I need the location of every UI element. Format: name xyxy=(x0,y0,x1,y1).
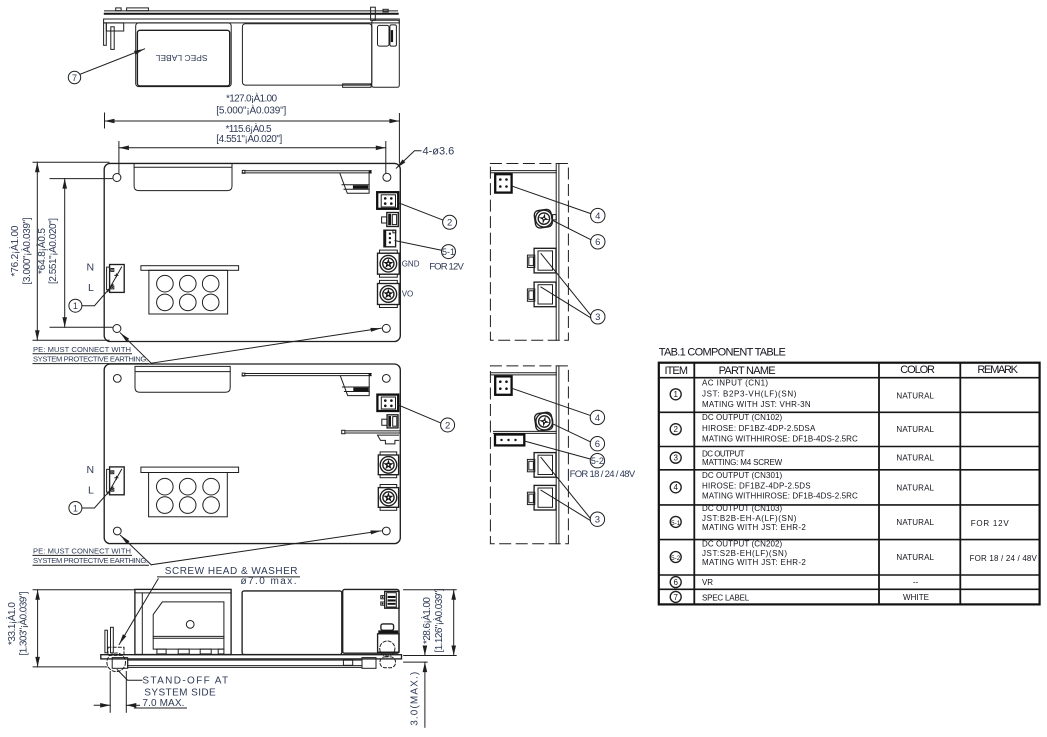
svg-text:[1.303"¡À0.039"]: [1.303"¡À0.039"] xyxy=(17,591,30,655)
svg-text:WHITE: WHITE xyxy=(903,593,929,602)
svg-text:2: 2 xyxy=(447,218,452,229)
svg-text:[2.551"¡À0.020"]: [2.551"¡À0.020"] xyxy=(46,218,59,284)
svg-text:NATURAL: NATURAL xyxy=(896,518,934,527)
svg-text:FOR 12V: FOR 12V xyxy=(429,262,464,273)
svg-text:6: 6 xyxy=(595,237,600,248)
svg-text:N: N xyxy=(87,464,95,476)
svg-text:MATING WITH JST: VHR-3N: MATING WITH JST: VHR-3N xyxy=(702,400,811,409)
svg-text:NATURAL: NATURAL xyxy=(896,391,934,400)
svg-text:MATING WITHHIROSE: DF1B-4DS-2.: MATING WITHHIROSE: DF1B-4DS-2.5RC xyxy=(702,435,858,444)
svg-text:*33.1¡À1.0: *33.1¡À1.0 xyxy=(5,602,18,645)
svg-text:NATURAL: NATURAL xyxy=(896,553,934,562)
svg-text:NATURAL: NATURAL xyxy=(896,483,934,492)
svg-text:JST:B2B-EH-A(LF)(SN): JST:B2B-EH-A(LF)(SN) xyxy=(702,514,797,523)
svg-text:SYSTEM PROTECTIVE EARTHING.: SYSTEM PROTECTIVE EARTHING. xyxy=(33,355,149,364)
svg-text:SYSTEM SIDE: SYSTEM SIDE xyxy=(144,687,216,698)
svg-text:DC OUTPUT (CN102): DC OUTPUT (CN102) xyxy=(702,413,783,422)
svg-text:4: 4 xyxy=(595,413,600,424)
svg-text:L: L xyxy=(88,282,94,294)
svg-text:VR: VR xyxy=(702,578,713,587)
svg-text:*76.2¡À1.00: *76.2¡À1.00 xyxy=(8,225,21,276)
svg-text:6: 6 xyxy=(595,439,600,450)
svg-text:2: 2 xyxy=(445,420,450,431)
svg-text:ITEM: ITEM xyxy=(665,365,689,377)
svg-text:4-ø3.6: 4-ø3.6 xyxy=(423,146,455,158)
svg-text:*64.8¡À0.5: *64.8¡À0.5 xyxy=(35,228,48,274)
svg-text:4: 4 xyxy=(673,483,678,492)
svg-text:MATING WITH JST: EHR-2: MATING WITH JST: EHR-2 xyxy=(702,523,806,532)
svg-text:[5.000"¡À0.039"]: [5.000"¡À0.039"] xyxy=(216,104,286,117)
svg-text:FOR 18 / 24 / 48V: FOR 18 / 24 / 48V xyxy=(570,469,636,480)
svg-text:*28.6¡À1.00: *28.6¡À1.00 xyxy=(420,597,433,644)
svg-text:*127.0¡À1.00: *127.0¡À1.00 xyxy=(226,92,277,105)
svg-text:1: 1 xyxy=(73,301,78,311)
svg-text:N: N xyxy=(87,262,95,274)
svg-text:*115.6¡À0.5: *115.6¡À0.5 xyxy=(226,122,272,135)
svg-text:FOR 18 / 24 / 48V: FOR 18 / 24 / 48V xyxy=(970,554,1038,563)
svg-text:MATTING: M4 SCREW: MATTING: M4 SCREW xyxy=(702,458,783,467)
svg-text:7: 7 xyxy=(673,593,678,602)
svg-text:GND: GND xyxy=(402,259,420,268)
svg-text:6: 6 xyxy=(673,578,678,587)
svg-text:5-1: 5-1 xyxy=(671,520,681,527)
svg-text:SYSTEM PROTECTIVE EARTHING.: SYSTEM PROTECTIVE EARTHING. xyxy=(33,556,149,565)
svg-text:MATING WITHHIROSE: DF1B-4DS-2.: MATING WITHHIROSE: DF1B-4DS-2.5RC xyxy=(702,491,858,500)
svg-text:3: 3 xyxy=(595,312,600,323)
svg-text:7: 7 xyxy=(72,73,77,83)
svg-text:[4.551"¡À0.020"]: [4.551"¡À0.020"] xyxy=(216,132,282,145)
svg-text:2: 2 xyxy=(673,425,678,434)
svg-text:TAB.1 COMPONENT TABLE: TAB.1 COMPONENT TABLE xyxy=(659,346,786,358)
svg-text:1: 1 xyxy=(673,390,678,399)
svg-text:AC INPUT (CN1): AC INPUT (CN1) xyxy=(702,378,768,387)
svg-text:5-2: 5-2 xyxy=(591,456,604,466)
svg-text:JST:S2B-EH(LF)(SN): JST:S2B-EH(LF)(SN) xyxy=(702,549,787,558)
svg-text:[3.000"¡À0.039"]: [3.000"¡À0.039"] xyxy=(20,217,33,284)
svg-text:[1.126"¡À0.039"]: [1.126"¡À0.039"] xyxy=(432,588,445,652)
svg-text:3: 3 xyxy=(673,454,678,463)
svg-text:3: 3 xyxy=(595,515,600,526)
svg-text:SPEC LABEL: SPEC LABEL xyxy=(155,53,207,63)
svg-text:7.0 MAX.: 7.0 MAX. xyxy=(142,698,184,709)
svg-text:JST: B2P3-VH(LF)(SN): JST: B2P3-VH(LF)(SN) xyxy=(702,389,797,398)
svg-text:DC OUTPUT (CN103): DC OUTPUT (CN103) xyxy=(702,504,783,513)
svg-text:NATURAL: NATURAL xyxy=(896,454,934,463)
svg-text:PART NAME: PART NAME xyxy=(719,365,776,377)
svg-text:5-2: 5-2 xyxy=(671,555,681,562)
svg-text:DC OUTPUT (CN202): DC OUTPUT (CN202) xyxy=(702,540,783,549)
svg-text:NATURAL: NATURAL xyxy=(896,425,934,434)
svg-text:DC OUTPUT (CN301): DC OUTPUT (CN301) xyxy=(702,471,783,480)
svg-text:5-1: 5-1 xyxy=(442,247,455,257)
svg-text:PE: MUST CONNECT WITH: PE: MUST CONNECT WITH xyxy=(33,546,132,555)
svg-text:FOR 12V: FOR 12V xyxy=(971,519,1010,528)
svg-text:3.0(MAX.): 3.0(MAX.) xyxy=(410,672,421,726)
svg-text:--: -- xyxy=(913,578,919,587)
svg-text:PE: MUST CONNECT WITH: PE: MUST CONNECT WITH xyxy=(33,345,132,354)
svg-text:ø7.0 max.: ø7.0 max. xyxy=(241,576,297,587)
svg-text:VO: VO xyxy=(402,290,414,299)
svg-text:COLOR: COLOR xyxy=(900,364,935,376)
svg-text:1: 1 xyxy=(73,503,78,513)
svg-text:STAND-OFF AT: STAND-OFF AT xyxy=(142,675,228,686)
svg-text:SPEC LABEL: SPEC LABEL xyxy=(702,593,750,602)
svg-text:4: 4 xyxy=(595,211,600,222)
svg-text:MATING WITH JST: EHR-2: MATING WITH JST: EHR-2 xyxy=(702,558,806,567)
svg-text:REMARK: REMARK xyxy=(977,364,1018,376)
svg-text:L: L xyxy=(88,484,94,496)
svg-text:HIROSE: DF1BZ-4DP-2.5DSA: HIROSE: DF1BZ-4DP-2.5DSA xyxy=(702,424,816,433)
svg-text:HIROSE: DF1BZ-4DP-2.5DS: HIROSE: DF1BZ-4DP-2.5DS xyxy=(702,481,811,490)
